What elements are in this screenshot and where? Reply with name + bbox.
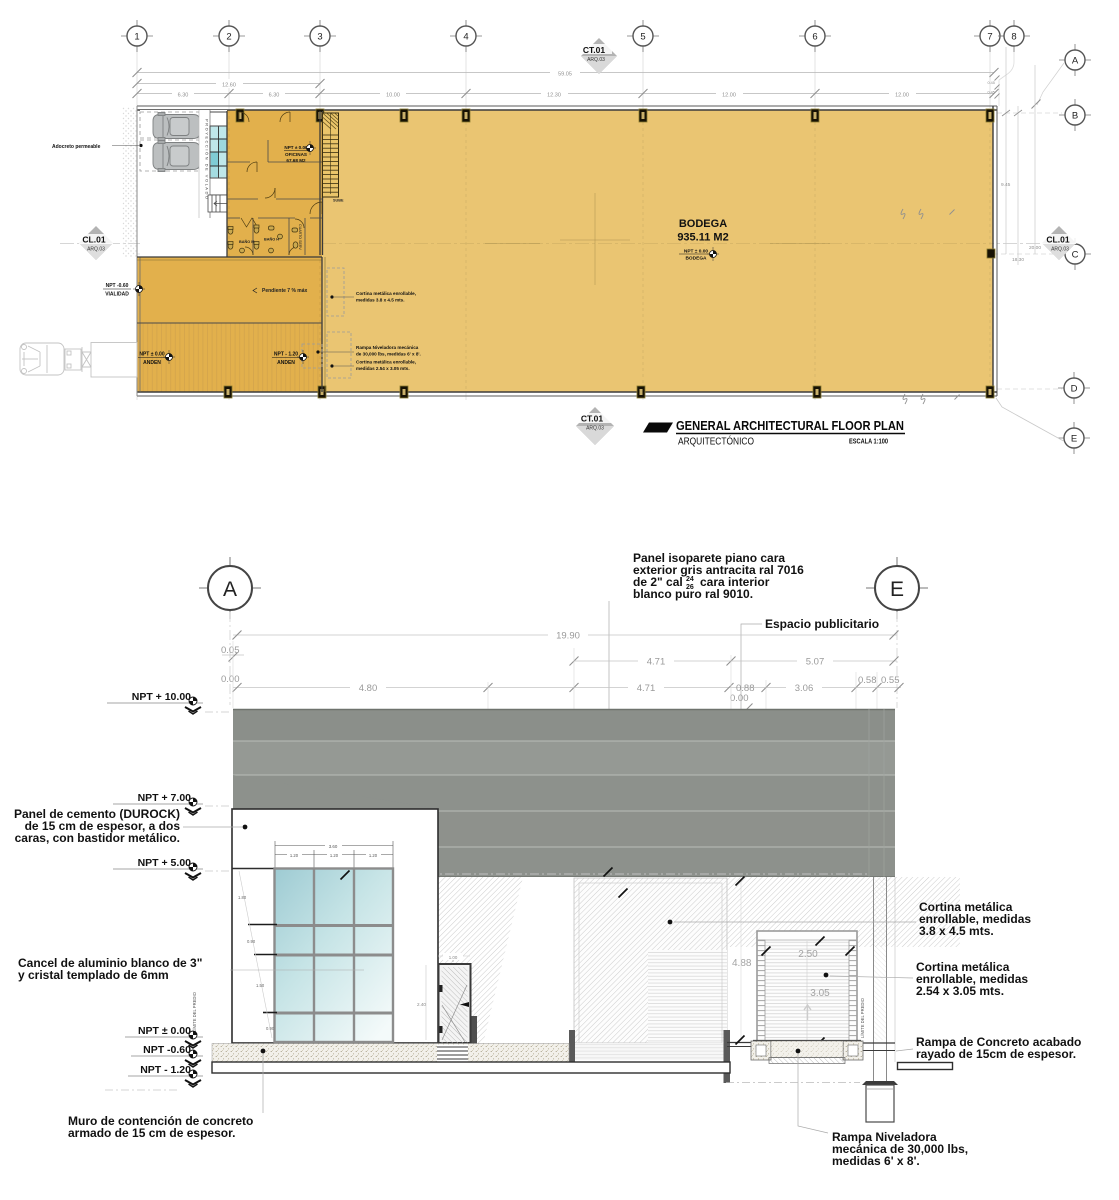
svg-text:BODEGA: BODEGA xyxy=(679,218,727,230)
svg-text:0.45: 0.45 xyxy=(988,91,995,95)
svg-text:0.45: 0.45 xyxy=(988,81,995,85)
svg-text:Pendiente 7 % máx: Pendiente 7 % máx xyxy=(262,288,308,294)
svg-text:CL.01: CL.01 xyxy=(1046,235,1069,245)
svg-text:E: E xyxy=(1071,434,1077,445)
svg-text:A: A xyxy=(1072,56,1079,67)
svg-text:medidas 2.54 x 3.05 mts.: medidas 2.54 x 3.05 mts. xyxy=(356,366,410,371)
svg-text:26: 26 xyxy=(686,584,694,591)
svg-text:CUARTO SERV.: CUARTO SERV. xyxy=(298,224,302,250)
svg-text:12.00: 12.00 xyxy=(722,93,736,99)
svg-text:rayado de 15cm de espesor.: rayado de 15cm de espesor. xyxy=(916,1047,1076,1061)
svg-text:935.11 M2: 935.11 M2 xyxy=(677,232,728,244)
svg-text:Cortina metálica enrollable,: Cortina metálica enrollable, xyxy=(356,360,416,365)
svg-text:Rampa Niveladora mecánica: Rampa Niveladora mecánica xyxy=(356,345,419,350)
svg-text:NPT ± 0.00: NPT ± 0.00 xyxy=(684,249,709,255)
svg-text:A: A xyxy=(223,578,237,601)
svg-text:0.05: 0.05 xyxy=(221,645,240,656)
svg-text:Adocreto permeable: Adocreto permeable xyxy=(52,144,101,150)
svg-text:6.30: 6.30 xyxy=(269,93,280,99)
svg-text:0.58: 0.58 xyxy=(858,675,877,686)
svg-text:BAÑO M: BAÑO M xyxy=(239,239,254,244)
svg-text:y cristal templado de 6mm: y cristal templado de 6mm xyxy=(18,968,169,982)
svg-text:3.06: 3.06 xyxy=(795,683,814,694)
svg-text:Espacio publicitario: Espacio publicitario xyxy=(765,617,879,631)
svg-text:67.68 M2: 67.68 M2 xyxy=(286,158,306,163)
svg-text:CT.01: CT.01 xyxy=(581,414,603,424)
svg-text:ARQ.03: ARQ.03 xyxy=(586,426,604,432)
svg-text:12.30: 12.30 xyxy=(547,93,561,99)
svg-text:3.60: 3.60 xyxy=(329,844,338,849)
svg-text:59.05: 59.05 xyxy=(558,72,572,78)
svg-text:NPT -0.60: NPT -0.60 xyxy=(143,1044,191,1056)
svg-text:ANDEN: ANDEN xyxy=(277,360,295,366)
svg-text:VIALIDAD: VIALIDAD xyxy=(105,292,129,298)
svg-text:NPT ± 0.00: NPT ± 0.00 xyxy=(139,352,164,358)
svg-text:1.20: 1.20 xyxy=(290,853,299,858)
svg-text:2: 2 xyxy=(226,32,231,43)
svg-text:NPT + 7.00: NPT + 7.00 xyxy=(138,792,192,804)
svg-text:CT.01: CT.01 xyxy=(583,45,605,55)
svg-text:1: 1 xyxy=(134,32,139,43)
svg-text:NPT + 10.00: NPT + 10.00 xyxy=(132,691,191,703)
svg-text:4.71: 4.71 xyxy=(637,683,656,694)
svg-text:caras, con bastidor metálico.: caras, con bastidor metálico. xyxy=(15,831,180,845)
svg-text:CL.01: CL.01 xyxy=(82,235,105,245)
svg-text:19.90: 19.90 xyxy=(556,631,580,642)
svg-text:9.45: 9.45 xyxy=(1001,182,1011,188)
svg-text:1.20: 1.20 xyxy=(330,853,339,858)
svg-text:0.00: 0.00 xyxy=(730,693,749,704)
svg-text:GENERAL ARCHITECTURAL FLOOR PL: GENERAL ARCHITECTURAL FLOOR PLAN xyxy=(676,419,904,433)
svg-text:0.55: 0.55 xyxy=(881,675,900,686)
svg-text:6: 6 xyxy=(812,32,817,43)
svg-text:4.80: 4.80 xyxy=(359,683,378,694)
svg-text:ARQ.03: ARQ.03 xyxy=(87,247,105,253)
svg-text:7: 7 xyxy=(987,32,992,43)
svg-text:2.40: 2.40 xyxy=(417,1002,426,1007)
svg-text:20.00: 20.00 xyxy=(1029,245,1041,251)
svg-text:1.20: 1.20 xyxy=(369,853,378,858)
svg-text:E: E xyxy=(890,578,904,601)
svg-text:NPT ± 0.00: NPT ± 0.00 xyxy=(138,1025,191,1037)
svg-text:de 30,000 lbs, medidas 6' x 8': de 30,000 lbs, medidas 6' x 8'. xyxy=(356,352,421,357)
svg-text:SUBE: SUBE xyxy=(333,199,344,203)
svg-text:B: B xyxy=(1072,111,1078,122)
svg-text:4.71: 4.71 xyxy=(647,657,666,668)
svg-text:medidas 3.8 x 4.5 mts.: medidas 3.8 x 4.5 mts. xyxy=(356,298,405,303)
svg-text:4.88: 4.88 xyxy=(732,958,752,969)
svg-text:BODEGA: BODEGA xyxy=(685,256,707,262)
svg-text:1.80: 1.80 xyxy=(238,895,247,900)
svg-text:12.60: 12.60 xyxy=(222,83,236,89)
svg-text:BAÑO H: BAÑO H xyxy=(264,237,279,242)
svg-text:8: 8 xyxy=(1011,32,1016,43)
svg-text:2.54 x 3.05 mts.: 2.54 x 3.05 mts. xyxy=(916,984,1004,998)
svg-text:ARQ.03: ARQ.03 xyxy=(1051,247,1069,253)
svg-text:LÍMITE DEL PREDIO: LÍMITE DEL PREDIO xyxy=(192,991,197,1032)
svg-text:ARQUITECTÓNICO: ARQUITECTÓNICO xyxy=(678,435,754,448)
svg-text:ESCALA 1:100: ESCALA 1:100 xyxy=(849,439,888,446)
svg-text:NPT -0.60: NPT -0.60 xyxy=(106,283,129,289)
svg-text:5.07: 5.07 xyxy=(806,657,825,668)
svg-text:NPT - 1.20: NPT - 1.20 xyxy=(140,1064,191,1076)
svg-text:5: 5 xyxy=(640,32,645,43)
svg-text:10.00: 10.00 xyxy=(386,93,400,99)
svg-text:6.30: 6.30 xyxy=(178,93,189,99)
svg-text:C: C xyxy=(1072,250,1079,261)
svg-text:ARQ.03: ARQ.03 xyxy=(587,57,605,63)
svg-text:0.90: 0.90 xyxy=(266,1026,275,1031)
svg-text:Cortina metálica enrollable,: Cortina metálica enrollable, xyxy=(356,291,416,296)
svg-text:ANDEN: ANDEN xyxy=(143,360,161,366)
svg-text:24: 24 xyxy=(686,576,694,583)
svg-text:0.00: 0.00 xyxy=(221,674,240,685)
svg-text:NPT ± 0.00: NPT ± 0.00 xyxy=(284,145,308,150)
svg-text:D: D xyxy=(1071,384,1078,395)
svg-text:18.30: 18.30 xyxy=(1012,257,1024,263)
svg-text:0.90: 0.90 xyxy=(247,939,256,944)
svg-text:NPT - 1.20: NPT - 1.20 xyxy=(274,352,298,358)
svg-text:3.05: 3.05 xyxy=(810,988,830,999)
svg-text:LÍMITE DEL PREDIO: LÍMITE DEL PREDIO xyxy=(860,997,865,1038)
svg-text:medidas 6' x 8'.: medidas 6' x 8'. xyxy=(832,1154,920,1168)
svg-text:4: 4 xyxy=(463,32,468,43)
svg-text:3: 3 xyxy=(317,32,322,43)
svg-text:OFICINAS: OFICINAS xyxy=(285,152,307,157)
svg-text:3.8 x 4.5 mts.: 3.8 x 4.5 mts. xyxy=(919,924,994,938)
svg-text:1.00: 1.00 xyxy=(449,955,458,960)
svg-text:1.50: 1.50 xyxy=(256,983,265,988)
svg-text:12.00: 12.00 xyxy=(895,93,909,99)
svg-text:NPT + 5.00: NPT + 5.00 xyxy=(138,857,192,869)
svg-text:armado de 15 cm de espesor.: armado de 15 cm de espesor. xyxy=(68,1126,235,1140)
svg-text:2.50: 2.50 xyxy=(798,949,818,960)
